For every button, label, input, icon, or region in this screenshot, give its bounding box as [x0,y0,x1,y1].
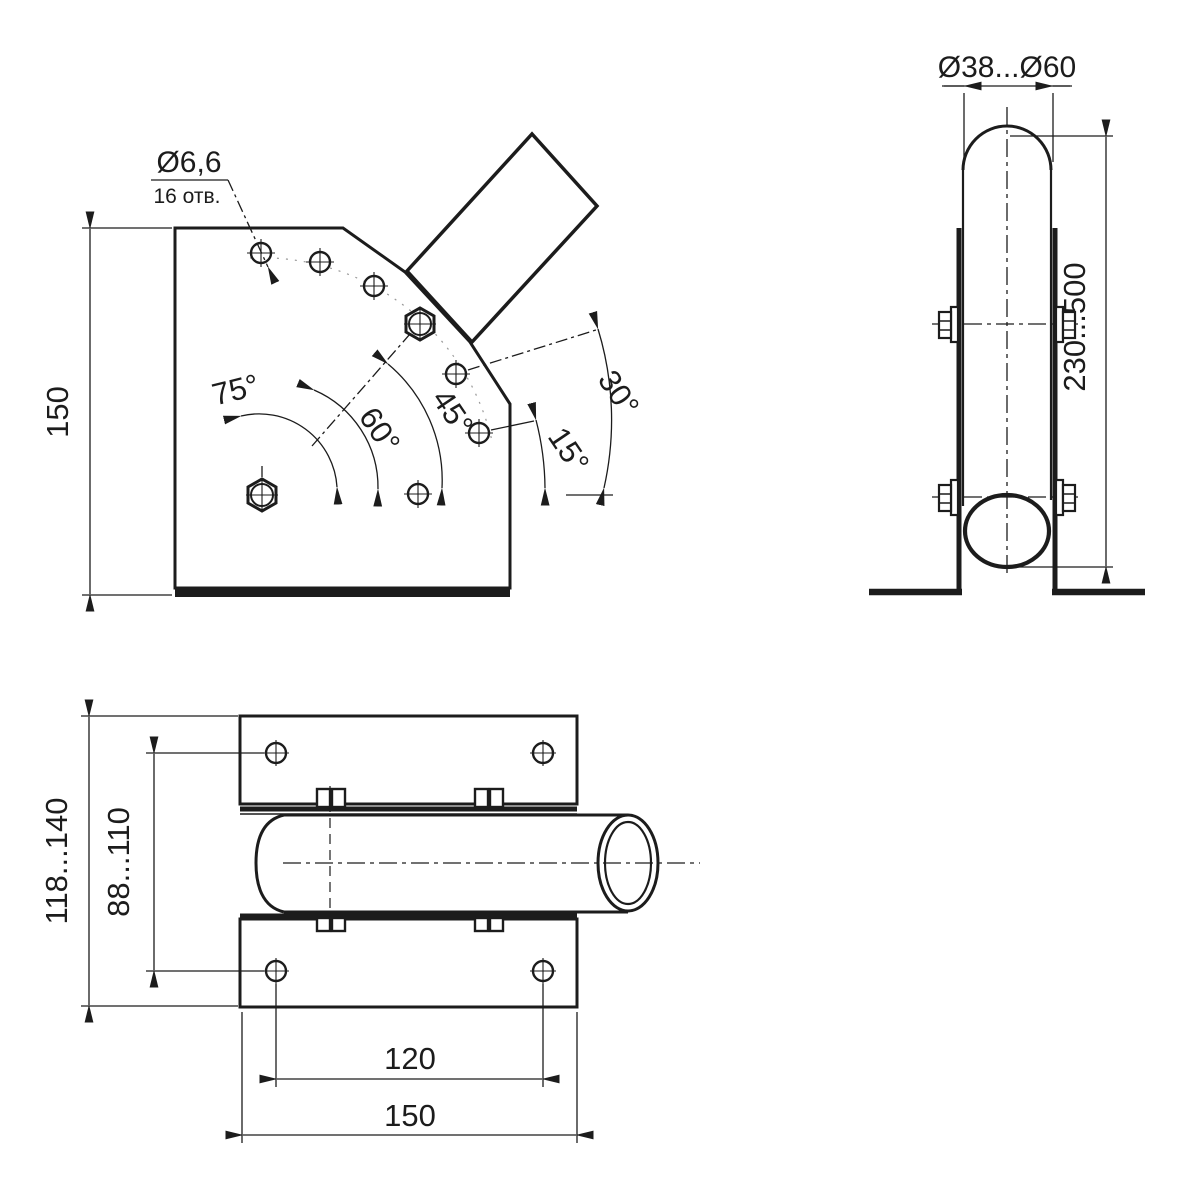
front-lower-bolt-left [939,480,958,515]
bolt-45deg [404,308,436,340]
side-view: 150 Ø6,6 16 отв. 75° 60° 45° 30° 15° [40,134,646,597]
hole-diameter-label: Ø6,6 [156,146,221,179]
hole-rows-label: 88...110 [101,807,136,917]
side-height-label: 150 [40,386,75,438]
angle-30-label: 30° [591,364,646,422]
arc-15 [536,420,545,488]
plate-length-label: 150 [384,1098,436,1133]
front-view: Ø38...Ø60 230...500 [869,51,1145,592]
hole-count-label: 16 отв. [153,185,220,208]
overall-width-label: 118...140 [39,798,74,925]
top-view-upper-plate [240,716,577,804]
dim-overall-width: 118...140 [39,716,238,1006]
technical-drawing: 150 Ø6,6 16 отв. 75° 60° 45° 30° 15° [0,0,1200,1200]
dim-plate-length: 150 [242,1012,577,1143]
hole-spacing-label: 120 [384,1041,436,1076]
bolt-pivot [246,479,278,511]
angle-15-label: 15° [541,421,596,479]
drawing-page: 150 Ø6,6 16 отв. 75° 60° 45° 30° 15° [0,0,1200,1200]
base-plate-edge [175,589,510,597]
dim-side-height: 150 [40,228,172,595]
clamp-height-label: 230...500 [1057,262,1092,391]
pole-diameter-label: Ø38...Ø60 [938,51,1076,84]
top-view: 118...140 88...110 120 150 [39,716,700,1143]
front-upper-bolt-left [939,307,958,342]
console-tube-left-cap [256,815,284,912]
radial-30-line [468,330,596,370]
top-view-lower-plate [240,919,577,1007]
front-lower-bolt-right [1056,480,1075,515]
